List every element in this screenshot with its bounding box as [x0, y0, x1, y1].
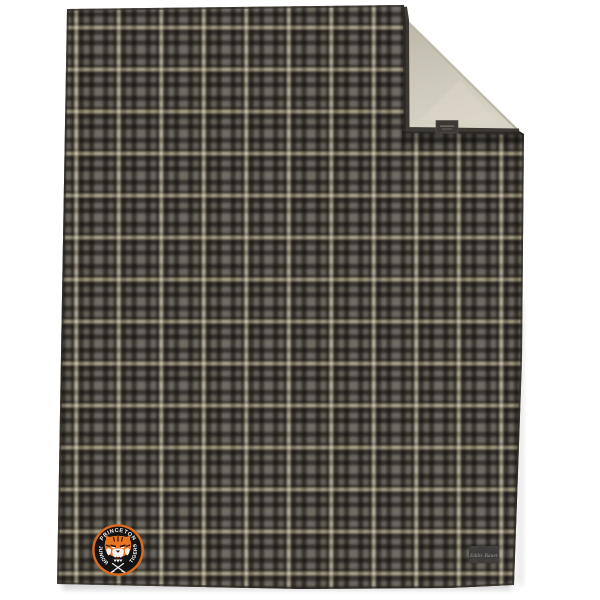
svg-text:Eddie Bauer: Eddie Bauer [469, 553, 499, 559]
